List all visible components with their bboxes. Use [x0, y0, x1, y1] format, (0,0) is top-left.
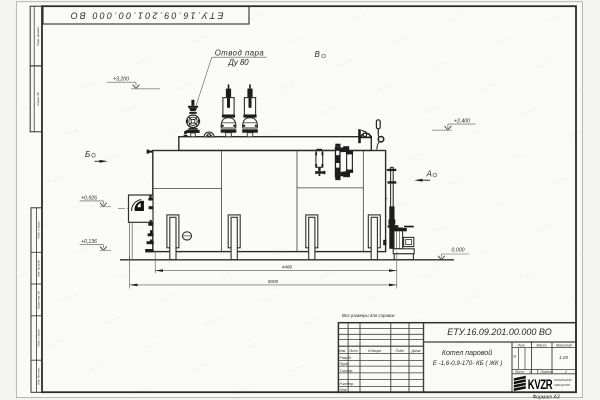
svg-text:Ду 80: Ду 80 — [227, 58, 249, 67]
svg-text:Все размеры для справок: Все размеры для справок — [342, 313, 396, 318]
svg-text:KVZR: KVZR — [528, 377, 553, 393]
svg-text:Масштаб: Масштаб — [556, 343, 572, 347]
svg-text:5000: 5000 — [268, 279, 279, 284]
svg-text:Дата: Дата — [411, 349, 421, 353]
svg-text:1:25: 1:25 — [559, 355, 568, 360]
svg-text:Е -1,6-0,9-170- КБ ( ЖК ): Е -1,6-0,9-170- КБ ( ЖК ) — [433, 360, 503, 367]
svg-text:Н.контр.: Н.контр. — [340, 382, 354, 386]
svg-text:Пров.: Пров. — [340, 362, 349, 366]
svg-text:Инв. № дубл.: Инв. № дубл. — [37, 259, 41, 276]
svg-text:Справ. №: Справ. № — [36, 91, 40, 105]
svg-text:Подп. и дата: Подп. и дата — [37, 221, 41, 239]
svg-text:+3,200: +3,200 — [113, 77, 129, 83]
svg-text:ЕТУ.16.09.201.00.000 ВО: ЕТУ.16.09.201.00.000 ВО — [68, 11, 223, 21]
svg-text:Подп.: Подп. — [396, 349, 405, 353]
svg-text:+0,926: +0,926 — [81, 195, 97, 201]
svg-text:Лист: Лист — [514, 370, 524, 374]
svg-text:Разраб.: Разраб. — [340, 356, 352, 360]
svg-text:ЕТУ.16.09.201.00.000 ВО: ЕТУ.16.09.201.00.000 ВО — [447, 327, 551, 337]
svg-text:В: В — [315, 50, 321, 59]
svg-text:Листов: Листов — [540, 370, 554, 374]
svg-text:ЗАВОД РЭП: ЗАВОД РЭП — [554, 383, 570, 387]
svg-text:Инв. № подл.: Инв. № подл. — [37, 367, 41, 385]
svg-text:1: 1 — [529, 370, 531, 374]
svg-text:Подп. и дата: Подп. и дата — [37, 329, 41, 347]
svg-text:0,000: 0,000 — [452, 248, 465, 254]
svg-text:N докум.: N докум. — [368, 349, 382, 353]
svg-text:А: А — [426, 169, 432, 178]
svg-text:+2,400: +2,400 — [454, 118, 470, 124]
svg-text:Лист: Лист — [348, 349, 358, 353]
svg-text:КОТЕЛЬНЫЙ: КОТЕЛЬНЫЙ — [554, 378, 572, 382]
svg-text:Масса: Масса — [536, 343, 546, 347]
svg-text:Формат А3: Формат А3 — [532, 395, 560, 400]
svg-text:Б: Б — [85, 150, 90, 159]
svg-text:Перв. примен.: Перв. примен. — [36, 26, 40, 46]
svg-text:Отвод пара: Отвод пара — [215, 49, 265, 58]
svg-text:2: 2 — [564, 370, 567, 374]
svg-text:Лит.: Лит. — [517, 343, 526, 347]
svg-text:4480: 4480 — [282, 265, 293, 270]
svg-text:Изм.: Изм. — [339, 349, 346, 353]
svg-text:Т.контр.: Т.контр. — [340, 369, 354, 373]
svg-text:Котел паровой: Котел паровой — [442, 349, 492, 357]
svg-text:Взам. инв. №: Взам. инв. № — [37, 291, 41, 308]
svg-text:Утв.: Утв. — [340, 388, 348, 392]
